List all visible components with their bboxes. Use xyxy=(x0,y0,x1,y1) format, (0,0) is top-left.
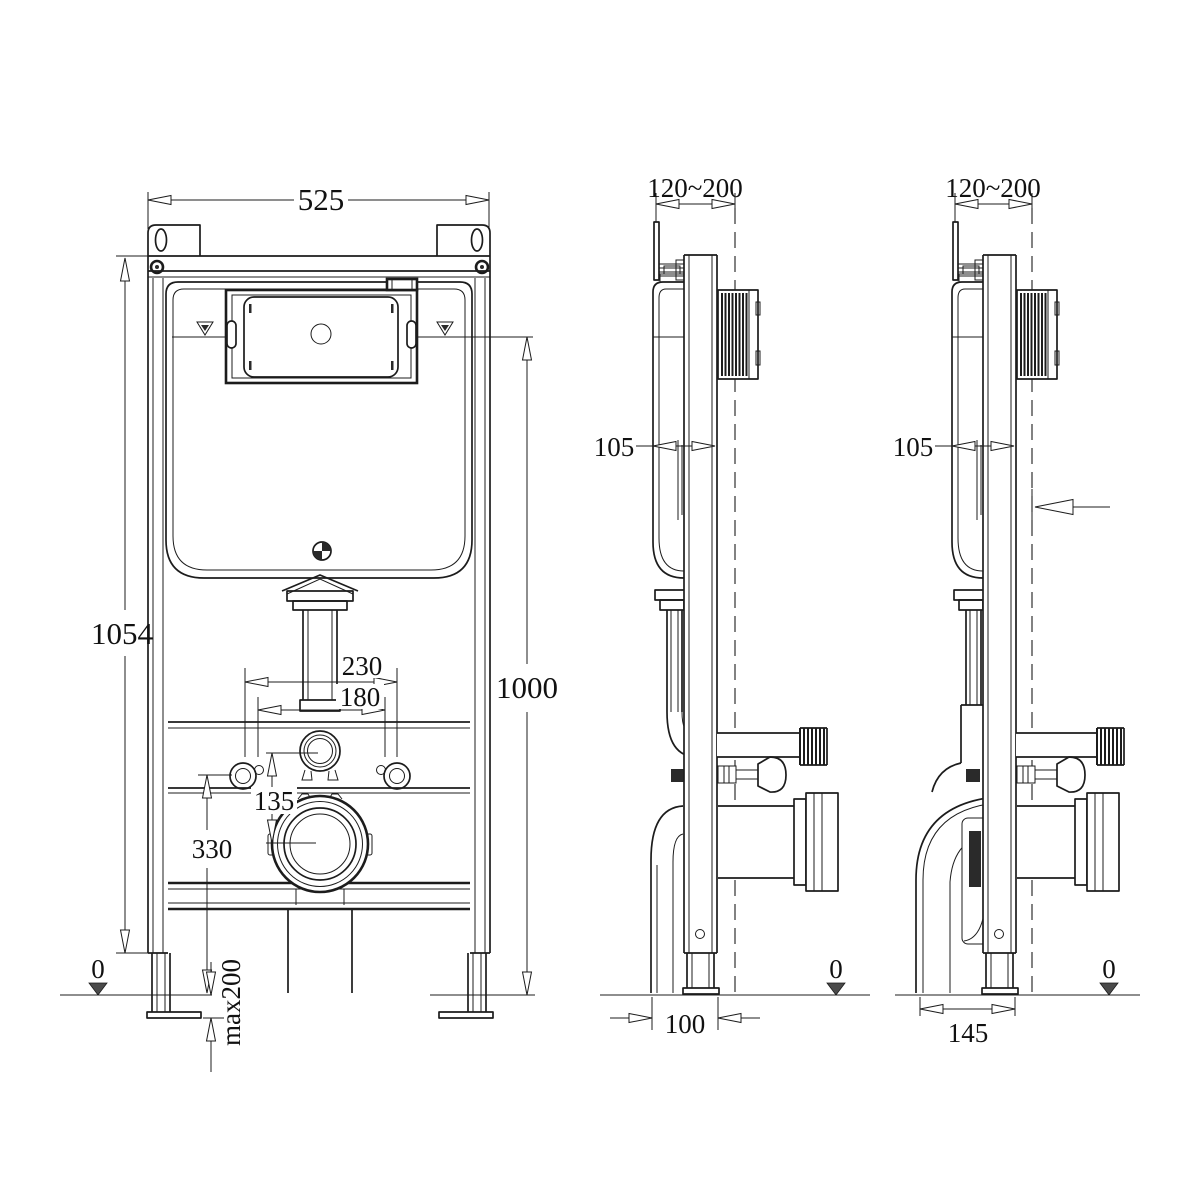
wall-arrow-icon xyxy=(1032,489,1110,526)
bolt-icon xyxy=(718,766,736,783)
side-view-a: 0 120~200 105 100 xyxy=(594,173,870,1039)
dim-side-b-outlet-depth-label: 145 xyxy=(948,1018,989,1048)
fixing-bolt-side xyxy=(671,769,685,782)
dim-side-a-depth-label: 105 xyxy=(594,432,635,462)
dim-side-a-wall-range: 120~200 xyxy=(647,173,743,222)
side-b-flush-pipe xyxy=(932,590,988,792)
dim-side-a-outlet-depth-label: 100 xyxy=(665,1009,706,1039)
floor-marker-icon xyxy=(827,983,845,995)
dim-front-inner-spacing-label: 180 xyxy=(340,682,381,712)
dim-front-leg-adjust: max200 xyxy=(207,959,247,1072)
level-mark-icon xyxy=(437,322,453,335)
dim-side-a-wall-range-label: 120~200 xyxy=(647,173,743,203)
screw-icon xyxy=(313,542,331,560)
front-access-panel xyxy=(226,279,417,383)
front-floor-label: 0 xyxy=(91,954,105,984)
front-floor-line xyxy=(60,995,535,1018)
fixing-bolt-side xyxy=(966,769,980,782)
level-mark-icon xyxy=(197,322,213,335)
floor-marker-icon xyxy=(1100,983,1118,995)
elbow-fixing-flap xyxy=(969,831,981,887)
side-b-floor-label: 0 xyxy=(1102,954,1116,984)
side-b-drain-connector xyxy=(1017,793,1119,891)
side-b-cistern xyxy=(952,222,983,578)
technical-drawing-svg: 525 1054 1000 230 xyxy=(0,0,1200,1200)
technical-drawing-page: 525 1054 1000 230 xyxy=(0,0,1200,1200)
side-b-frame-column xyxy=(982,255,1018,994)
dim-side-b-outlet-depth: 145 xyxy=(920,997,1015,1048)
dim-side-b-wall-range: 120~200 xyxy=(945,173,1041,222)
front-fixing-bolt xyxy=(377,763,411,789)
floor-marker-icon xyxy=(89,983,107,995)
dim-front-frame-height-label: 1054 xyxy=(91,616,154,651)
front-view: 525 1054 1000 230 xyxy=(60,182,558,1072)
front-floor-datum: 0 xyxy=(89,954,107,995)
cone-nut xyxy=(758,757,786,792)
side-view-b: 0 120~200 105 145 xyxy=(893,173,1140,1048)
dim-front-plate-height: 1000 xyxy=(496,337,558,995)
dim-front-inner-spacing: 180 xyxy=(258,682,385,757)
dim-front-width-label: 525 xyxy=(298,182,345,217)
dim-front-bolt-height-label: 330 xyxy=(192,834,233,864)
side-a-drain-connector xyxy=(718,793,838,891)
side-b-floor-datum: 0 xyxy=(1100,954,1118,995)
dim-front-frame-height: 1054 xyxy=(91,256,154,953)
front-flush-outlet xyxy=(300,731,340,780)
dim-side-a-outlet-depth: 100 xyxy=(610,997,760,1039)
wall-bracket xyxy=(953,222,958,280)
front-drain-outlet xyxy=(268,794,372,993)
dim-front-width: 525 xyxy=(148,182,489,229)
side-a-floor-datum: 0 xyxy=(827,954,845,995)
dim-front-plate-height-label: 1000 xyxy=(496,670,558,705)
dim-front-bolt-spacing-label: 230 xyxy=(342,651,383,681)
side-a-protection-box xyxy=(718,290,760,379)
front-legs xyxy=(147,953,493,1018)
dim-side-b-wall-range-label: 120~200 xyxy=(945,173,1041,203)
dim-side-b-depth-label: 105 xyxy=(893,432,934,462)
side-a-flush-connector xyxy=(717,728,827,792)
dim-front-leg-adjust-label: max200 xyxy=(216,959,246,1046)
wall-bracket xyxy=(654,222,659,280)
side-a-frame-column xyxy=(683,255,719,994)
side-a-drain-elbow xyxy=(651,806,683,993)
side-b-protection-box xyxy=(1017,290,1059,379)
side-a-floor-label: 0 xyxy=(829,954,843,984)
bolt-icon xyxy=(1017,766,1035,783)
dim-front-outlet-offset-label: 135 xyxy=(254,786,295,816)
cone-nut xyxy=(1057,757,1085,792)
side-a-cistern xyxy=(653,222,684,578)
